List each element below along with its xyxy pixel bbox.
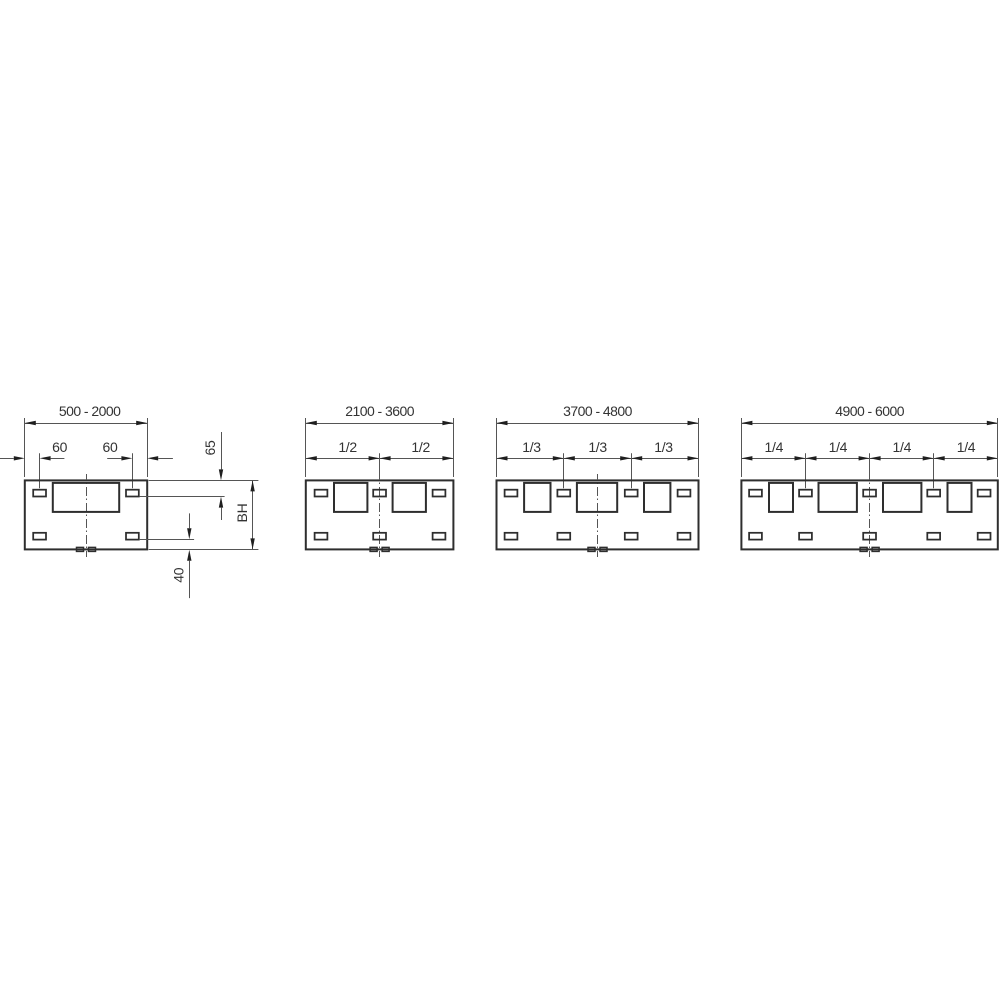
svg-text:3700 - 4800: 3700 - 4800 xyxy=(563,403,632,419)
svg-text:1/4: 1/4 xyxy=(829,439,848,455)
svg-text:1/4: 1/4 xyxy=(765,439,784,455)
svg-text:1/3: 1/3 xyxy=(654,439,673,455)
svg-text:1/2: 1/2 xyxy=(338,439,357,455)
svg-text:40: 40 xyxy=(171,567,187,582)
svg-text:65: 65 xyxy=(202,440,218,455)
svg-text:1/2: 1/2 xyxy=(411,439,430,455)
svg-text:1/4: 1/4 xyxy=(957,439,976,455)
svg-text:1/3: 1/3 xyxy=(522,439,541,455)
svg-text:60: 60 xyxy=(103,439,118,455)
svg-text:500 - 2000: 500 - 2000 xyxy=(59,403,121,419)
svg-text:60: 60 xyxy=(52,439,67,455)
svg-text:4900 - 6000: 4900 - 6000 xyxy=(835,403,904,419)
svg-text:1/3: 1/3 xyxy=(588,439,607,455)
svg-text:BH: BH xyxy=(234,504,250,523)
svg-text:2100 - 3600: 2100 - 3600 xyxy=(345,403,414,419)
svg-text:1/4: 1/4 xyxy=(893,439,912,455)
